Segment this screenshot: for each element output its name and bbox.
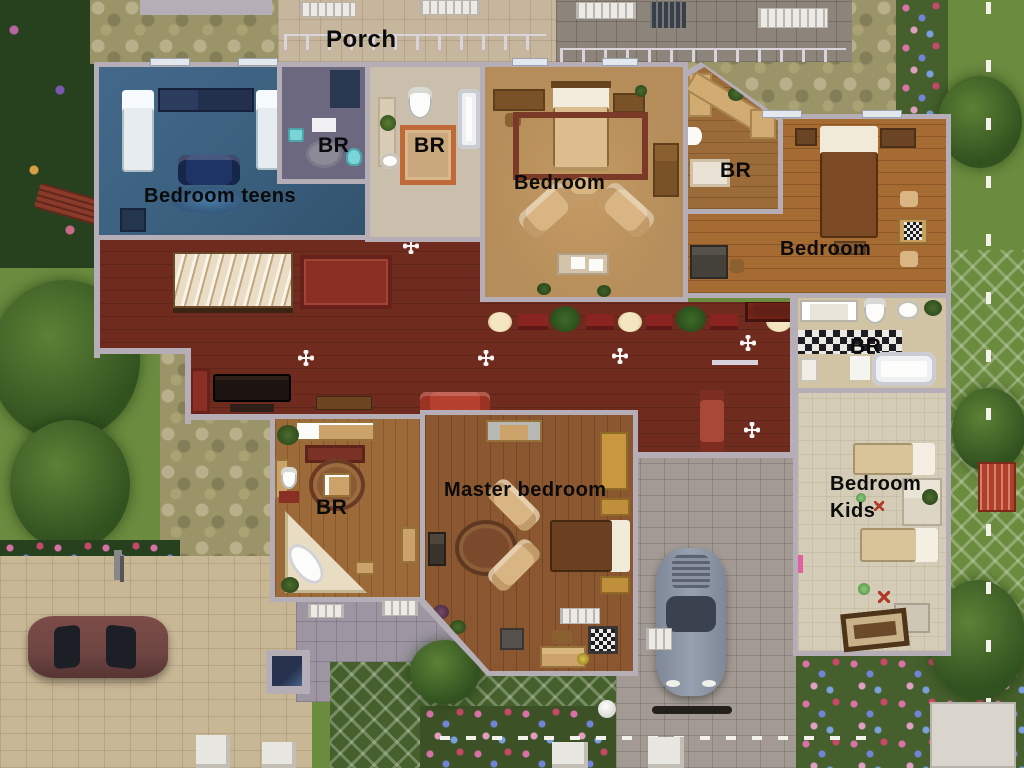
- garden-topleft: [0, 0, 104, 268]
- wall: [94, 234, 100, 358]
- car-roof-vents: [672, 554, 710, 588]
- plant[interactable]: [450, 620, 466, 634]
- plant[interactable]: [537, 283, 551, 295]
- bed-double[interactable]: [820, 126, 878, 238]
- tree-left-2: [10, 420, 130, 550]
- buffet-table[interactable]: [486, 420, 542, 442]
- desk-dark[interactable]: [690, 245, 728, 279]
- patio-chess-table[interactable]: [588, 626, 618, 654]
- label-br-corner-bath: BR: [720, 157, 751, 184]
- table-lamp-1[interactable]: [488, 312, 512, 332]
- label-porch: Porch: [326, 24, 397, 55]
- planter-1[interactable]: [518, 314, 548, 330]
- patio-bench-2[interactable]: [382, 600, 418, 616]
- wall: [185, 348, 191, 424]
- window: [762, 110, 802, 118]
- teen-desks[interactable]: [158, 88, 254, 112]
- play-structure-red[interactable]: [978, 462, 1016, 512]
- basement-window-glass: [272, 656, 302, 686]
- door-marker-pink: [798, 555, 803, 573]
- side-chair[interactable]: [900, 251, 918, 267]
- fence-pillar: [196, 735, 230, 768]
- plant[interactable]: [635, 85, 647, 97]
- door-opening: [712, 360, 758, 365]
- crib[interactable]: [840, 608, 910, 653]
- teen-bed-left[interactable]: [122, 90, 154, 172]
- bathtub[interactable]: [458, 89, 480, 149]
- basement-window-box: [266, 650, 310, 694]
- writing-desk[interactable]: [428, 532, 446, 566]
- plant[interactable]: [277, 425, 299, 445]
- wall: [630, 452, 796, 458]
- car-window-front: [54, 625, 80, 670]
- fence-pillar: [262, 742, 296, 768]
- label-br-teen-bath: BR: [318, 132, 349, 159]
- label-bedroom-right: Bedroom: [780, 236, 871, 262]
- desk[interactable]: [493, 89, 545, 111]
- label-br-right-bath: BR: [850, 333, 881, 360]
- car-windshield: [666, 596, 716, 632]
- towel-mat: [312, 118, 336, 132]
- window: [602, 58, 638, 66]
- patio-chair-dark[interactable]: [500, 628, 524, 650]
- planter-2[interactable]: [586, 314, 614, 330]
- label-bedroom-kids: Bedroom Kids: [830, 471, 921, 525]
- planter-white-bottomright: [930, 702, 1016, 768]
- teen-sofa[interactable]: [178, 155, 240, 185]
- stair-railing: [173, 308, 293, 313]
- patio-chair-white[interactable]: [646, 628, 672, 650]
- dresser[interactable]: [401, 527, 417, 563]
- fence-pillar: [648, 737, 684, 768]
- car-stop-strip: [652, 706, 732, 714]
- porch-bench-2[interactable]: [420, 0, 480, 15]
- bookcase[interactable]: [653, 143, 679, 197]
- vanity-counter[interactable]: [295, 421, 375, 441]
- plant[interactable]: [281, 577, 299, 593]
- car-silver[interactable]: [656, 548, 726, 696]
- plant[interactable]: [380, 115, 396, 131]
- lamp-post: [120, 556, 124, 582]
- window: [862, 110, 902, 118]
- move-handle-icon[interactable]: [740, 335, 756, 351]
- patio-bench-1[interactable]: [308, 604, 344, 618]
- staircase[interactable]: [173, 252, 293, 308]
- label-br-main-bath: BR: [414, 132, 445, 159]
- label-master-bedroom: Master bedroom: [444, 477, 607, 503]
- move-handle-icon[interactable]: [478, 350, 494, 366]
- planter-3[interactable]: [646, 314, 672, 330]
- teen-dresser[interactable]: [120, 208, 146, 232]
- toilet[interactable]: [864, 298, 886, 324]
- round-sink[interactable]: [896, 300, 920, 320]
- plant-large-1[interactable]: [550, 306, 580, 332]
- label-bedroom-kids-line2: Kids: [830, 498, 921, 525]
- plant-large-2[interactable]: [676, 306, 706, 332]
- car-window-rear: [106, 624, 136, 669]
- chess-board: [904, 222, 922, 240]
- piano-bench[interactable]: [230, 404, 274, 412]
- porch-railing-left: [284, 34, 546, 50]
- wall: [94, 348, 191, 354]
- room-bath-master[interactable]: [270, 414, 425, 602]
- shower[interactable]: [330, 70, 360, 108]
- toy-green[interactable]: [858, 583, 870, 595]
- nightstand[interactable]: [600, 576, 630, 594]
- move-handle-icon[interactable]: [298, 350, 314, 366]
- label-br-master-bath: BR: [316, 494, 347, 521]
- room-bath-teen[interactable]: [277, 62, 370, 184]
- toilet-rug: [279, 491, 299, 503]
- plant[interactable]: [597, 285, 611, 297]
- sims-floorplan-view: Porch Bedroom teens BR BR Bedroom BR Bed…: [0, 0, 1024, 768]
- porch-grill[interactable]: [650, 2, 686, 28]
- label-bedroom-main: Bedroom: [514, 170, 605, 196]
- headboard: [551, 81, 611, 88]
- porch-bench-1[interactable]: [300, 2, 356, 17]
- dresser[interactable]: [880, 128, 916, 148]
- fence-right: [986, 0, 991, 768]
- nightstand[interactable]: [795, 128, 817, 146]
- label-bedroom-teens: Bedroom teens: [144, 183, 296, 209]
- toilet[interactable]: [408, 87, 432, 119]
- car-maroon[interactable]: [28, 616, 168, 678]
- hall-runner-rug[interactable]: [190, 368, 210, 414]
- papers: [571, 257, 585, 269]
- kid-bed-2[interactable]: [860, 528, 938, 562]
- porch-bench-3[interactable]: [576, 2, 636, 19]
- toy-red-x[interactable]: [878, 591, 890, 603]
- car-headlights: [666, 680, 680, 687]
- patio-bench-3[interactable]: [560, 608, 600, 624]
- plant[interactable]: [924, 300, 942, 316]
- bathtub[interactable]: [872, 352, 936, 386]
- toilet[interactable]: [688, 127, 702, 145]
- porch-bench-4[interactable]: [758, 8, 828, 28]
- pedestal-sink[interactable]: [380, 153, 400, 169]
- plant[interactable]: [433, 605, 449, 619]
- toilet[interactable]: [281, 467, 297, 489]
- wall-strip-topleft: [140, 0, 272, 15]
- fence-pillar: [552, 742, 588, 768]
- move-handle-icon[interactable]: [612, 348, 628, 364]
- label-bedroom-kids-line1: Bedroom: [830, 471, 921, 498]
- double-sink-counter[interactable]: [800, 300, 858, 322]
- side-chair[interactable]: [900, 191, 918, 207]
- window: [512, 58, 548, 66]
- sideboard[interactable]: [316, 396, 372, 410]
- plant[interactable]: [922, 489, 938, 505]
- garden-gnome[interactable]: [598, 700, 616, 718]
- desk-chair[interactable]: [552, 630, 572, 644]
- piano[interactable]: [213, 374, 291, 402]
- hamper[interactable]: [800, 358, 818, 382]
- hall-red-rug[interactable]: [300, 255, 392, 309]
- flowers-yellow[interactable]: [577, 653, 589, 665]
- side-table[interactable]: [355, 561, 375, 575]
- exercise-machine[interactable]: [700, 390, 724, 452]
- desk-chair[interactable]: [730, 259, 744, 273]
- window: [150, 58, 190, 66]
- move-handle-icon[interactable]: [744, 422, 760, 438]
- table-lamp-2[interactable]: [618, 312, 642, 332]
- bed-master[interactable]: [550, 520, 630, 572]
- sink[interactable]: [288, 128, 304, 142]
- window: [238, 58, 278, 66]
- planter-4[interactable]: [710, 314, 738, 330]
